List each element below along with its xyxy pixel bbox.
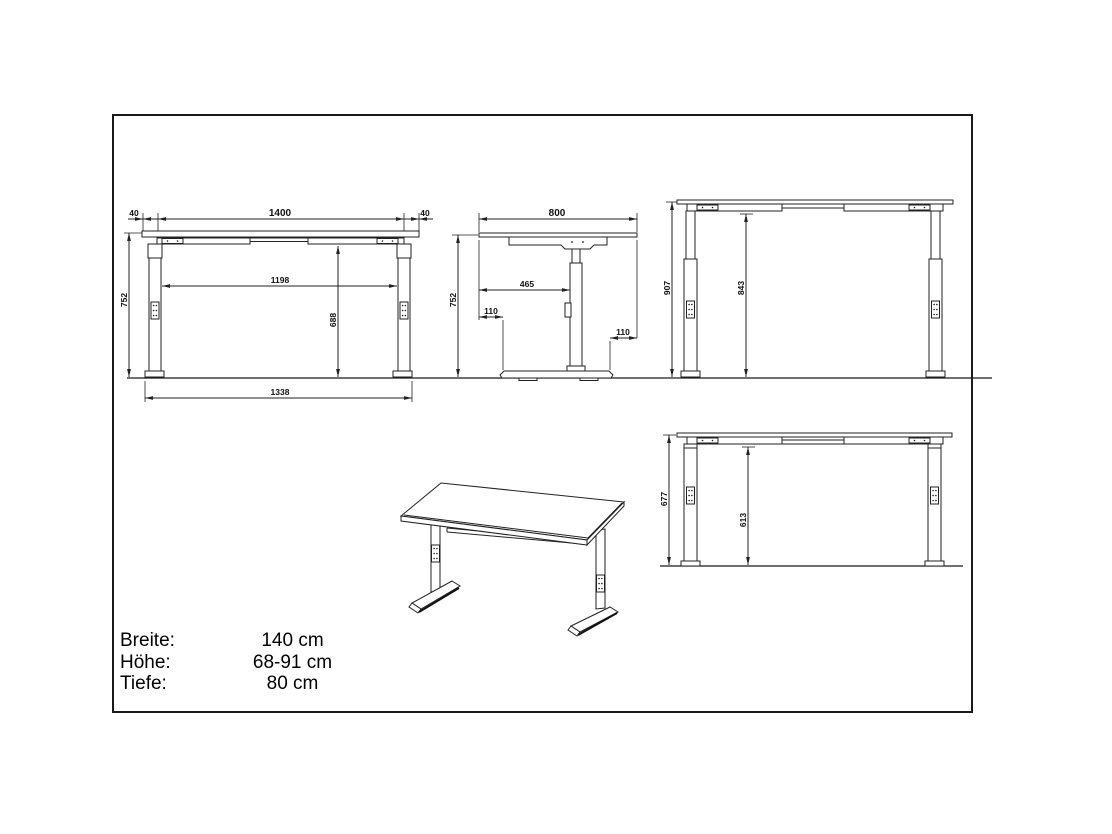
foot-side (500, 371, 613, 381)
dimension-height-907: 907 (662, 202, 677, 377)
iso-foot-right (568, 607, 618, 636)
iso-leg-right (596, 529, 605, 609)
foot-glide (519, 378, 537, 381)
tabletop-side (479, 233, 637, 237)
spec-value-hoehe: 68-91 cm (230, 652, 355, 674)
dim-label-depth: 800 (549, 208, 566, 219)
dimension-height-677: 677 (659, 435, 676, 565)
foot-left (681, 371, 700, 377)
dim-label-clearance-height: 688 (328, 313, 338, 327)
dim-label-foot-span: 1338 (271, 387, 290, 397)
underframe-rail (157, 238, 404, 244)
dim-label-height-lowered: 677 (659, 492, 669, 506)
dimension-clearance-613: 613 (738, 447, 755, 565)
dimension-clearance-688: 688 (328, 246, 338, 377)
view-front-lowered: 677 613 (659, 433, 952, 566)
control-panel (687, 487, 695, 504)
spec-value-breite: 140 cm (230, 630, 355, 652)
underframe-rail (687, 204, 943, 211)
iso-leg-left (431, 520, 440, 592)
dim-label-edge-to-column: 465 (520, 279, 534, 289)
dim-label-overhang-right: 40 (420, 208, 430, 218)
view-side: 800 752 465 110 110 (448, 208, 637, 381)
dim-label-rear-overhang: 110 (616, 327, 630, 337)
control-panel (151, 302, 159, 319)
foot-right (925, 561, 944, 566)
control-panel (432, 545, 440, 562)
mounting-plate-left (697, 205, 718, 210)
leg-left (148, 244, 162, 371)
dim-label-top-width: 1400 (269, 208, 292, 219)
foot-left (145, 371, 164, 377)
leg-left (684, 211, 697, 371)
control-box-side (565, 303, 571, 317)
dimension-height-752: 752 (119, 233, 143, 377)
dimension-height-side: 752 (448, 235, 478, 377)
dimension-front-overhang: 110 (479, 306, 503, 370)
drawing-page: 1400 40 40 752 688 1198 1338 (0, 0, 1112, 834)
leg-right (397, 244, 411, 371)
control-panel (400, 302, 408, 319)
dim-label-overhang-left: 40 (129, 208, 139, 218)
mounting-plate-left (697, 438, 718, 443)
dim-label-height-side: 752 (448, 293, 458, 307)
foot-left (681, 561, 700, 566)
technical-drawing-canvas: 1400 40 40 752 688 1198 1338 (0, 0, 1112, 834)
dimension-clearance-width: 1198 (162, 275, 397, 286)
control-panel (932, 301, 940, 318)
spec-row-tiefe: Tiefe: 80 cm (120, 673, 355, 695)
tabletop (677, 200, 953, 204)
leg-right (928, 444, 941, 561)
spec-value-tiefe: 80 cm (230, 673, 355, 695)
underframe-rail (687, 437, 943, 444)
dimension-depth: 800 (479, 208, 637, 232)
spec-row-breite: Breite: 140 cm (120, 630, 355, 652)
leg-left (684, 444, 697, 561)
view-front-752: 1400 40 40 752 688 1198 1338 (119, 208, 433, 402)
view-isometric (401, 483, 624, 636)
mounting-plate-right (909, 205, 930, 210)
spec-table: Breite: 140 cm Höhe: 68-91 cm Tiefe: 80 … (120, 630, 355, 695)
mounting-plate-left (162, 239, 183, 244)
mounting-plate-right (909, 438, 930, 443)
foot-right (926, 371, 945, 377)
dim-label-clearance-width: 1198 (271, 275, 290, 285)
dim-label-clearance-raised: 843 (736, 281, 746, 295)
dim-label-height: 752 (119, 293, 129, 307)
dim-label-front-overhang: 110 (484, 306, 498, 316)
leg-right (929, 211, 942, 371)
control-panel (597, 575, 605, 592)
spec-row-hoehe: Höhe: 68-91 cm (120, 652, 355, 674)
dim-label-height-raised: 907 (662, 281, 672, 295)
dimension-rear-overhang: 110 (610, 240, 637, 370)
mounting-plate-right (377, 239, 398, 244)
view-front-raised: 907 843 (662, 200, 953, 377)
column-side (565, 249, 585, 371)
spec-label-tiefe: Tiefe: (120, 673, 230, 695)
dimension-foot-span: 1338 (145, 381, 412, 402)
dimension-clearance-843: 843 (736, 214, 753, 377)
foot-right (393, 371, 412, 377)
dim-label-clearance-lowered: 613 (738, 513, 748, 527)
foot-glide (580, 378, 598, 381)
spec-label-breite: Breite: (120, 630, 230, 652)
tabletop (677, 433, 952, 437)
control-panel (931, 487, 939, 504)
control-panel (687, 301, 695, 318)
underframe-side (509, 237, 607, 249)
tabletop (142, 231, 419, 237)
spec-label-hoehe: Höhe: (120, 652, 230, 674)
